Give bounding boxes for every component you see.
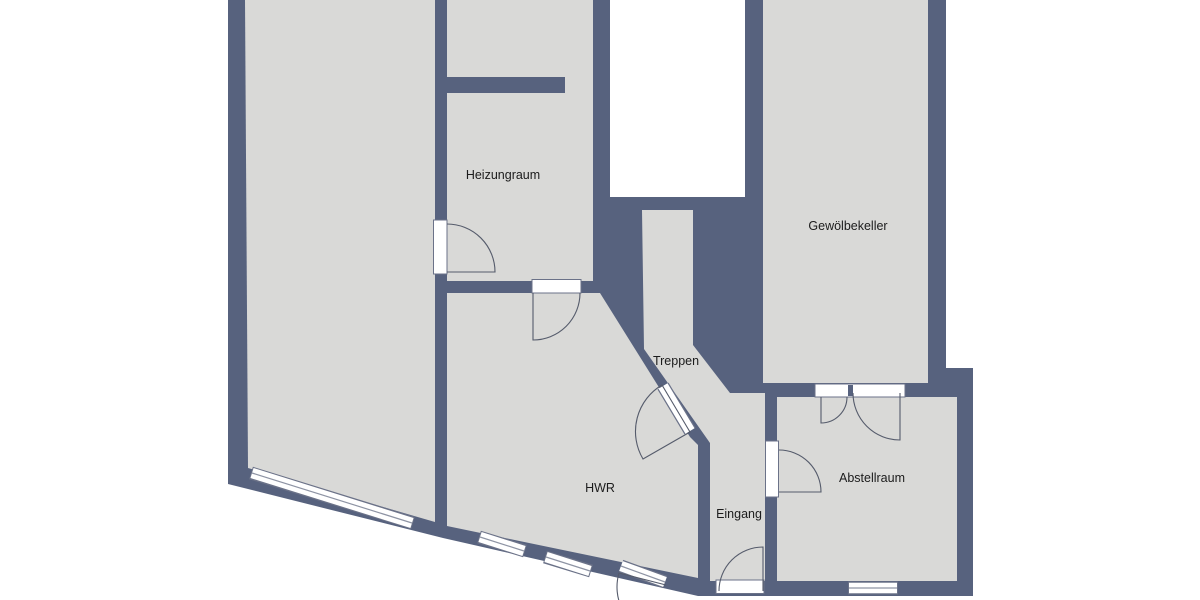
floorplan-canvas: Heizungraum Gewölbekeller Treppen HWR Ei… — [0, 0, 1200, 600]
label-eingang: Eingang — [716, 507, 762, 521]
room-abstellraum — [777, 397, 957, 581]
label-treppen: Treppen — [653, 354, 699, 368]
label-heizungraum: Heizungraum — [466, 168, 540, 182]
label-hwr: HWR — [585, 481, 615, 495]
room-cellar-left — [245, 0, 435, 522]
label-gewoelbekeller: Gewölbekeller — [808, 219, 887, 233]
partial-wall-heizungraum — [447, 77, 565, 93]
floorplan-svg: Heizungraum Gewölbekeller Treppen HWR Ei… — [0, 0, 1200, 600]
room-gewoelbekeller — [763, 0, 928, 383]
room-heizungraum — [447, 0, 593, 281]
label-abstellraum: Abstellraum — [839, 471, 905, 485]
